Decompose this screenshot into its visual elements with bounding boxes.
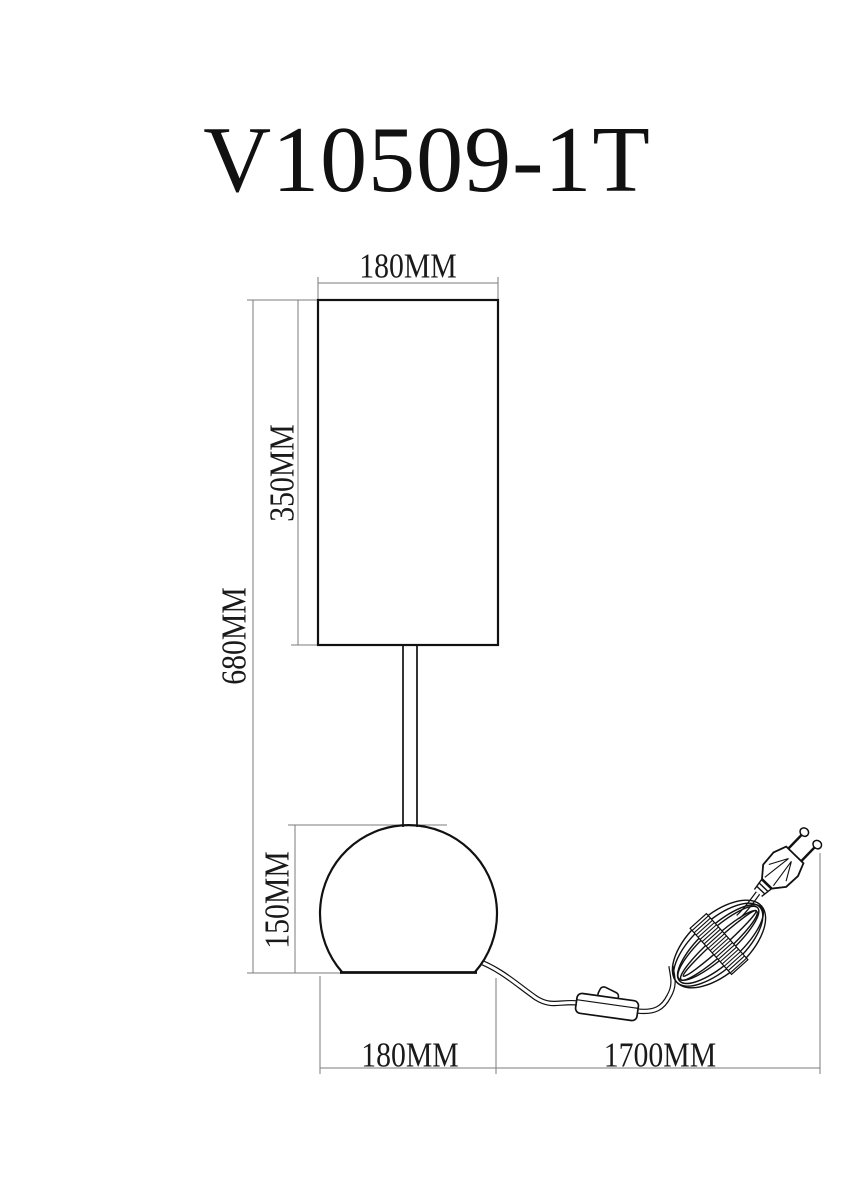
power-plug-icon — [746, 824, 826, 905]
dim-label-cord-length: 1700MM — [604, 1038, 716, 1073]
lamp-dimension-drawing — [0, 0, 848, 1200]
dim-label-shade-height: 350MM — [265, 424, 300, 522]
plug-body — [755, 843, 807, 895]
dim-label-base-width: 180MM — [361, 1038, 459, 1073]
technical-drawing-page: V10509-1T — [0, 0, 848, 1200]
dim-label-shade-width: 180MM — [359, 249, 457, 284]
dim-label-base-height: 150MM — [260, 851, 295, 949]
lamp-shade — [318, 300, 498, 645]
lamp-base — [320, 825, 497, 972]
dim-label-lamp-height: 680MM — [217, 587, 252, 685]
lamp-outline — [318, 300, 498, 973]
cord-switch-icon — [575, 982, 641, 1021]
coil-wrap-band — [690, 914, 748, 975]
